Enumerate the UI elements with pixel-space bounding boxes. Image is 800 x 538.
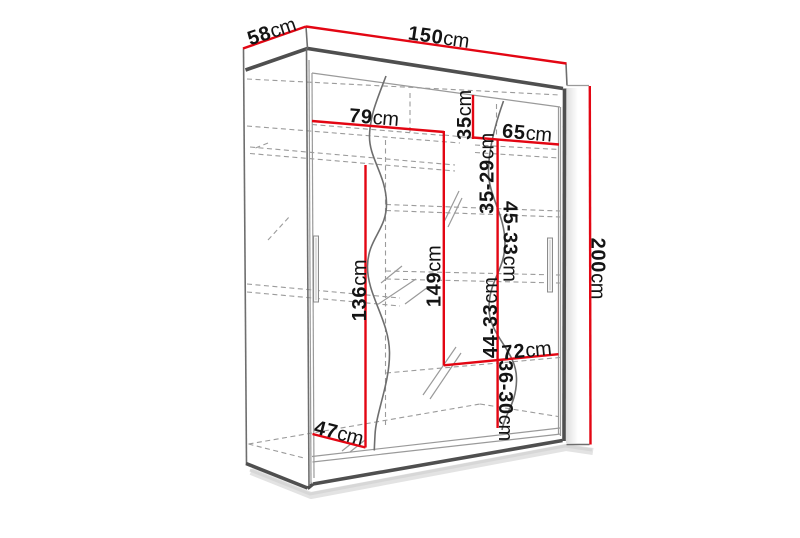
svg-text:45-33cm: 45-33cm bbox=[498, 201, 520, 282]
svg-text:149cm: 149cm bbox=[424, 246, 446, 308]
svg-text:36-30cm: 36-30cm bbox=[494, 360, 516, 441]
svg-text:136cm: 136cm bbox=[349, 260, 371, 322]
svg-text:35-29cm: 35-29cm bbox=[477, 133, 499, 214]
svg-text:35cm: 35cm bbox=[454, 90, 476, 140]
svg-text:44-33cm: 44-33cm bbox=[480, 277, 502, 358]
svg-text:79cm: 79cm bbox=[348, 105, 399, 131]
svg-text:65cm: 65cm bbox=[501, 120, 552, 146]
svg-text:200cm: 200cm bbox=[586, 238, 608, 300]
